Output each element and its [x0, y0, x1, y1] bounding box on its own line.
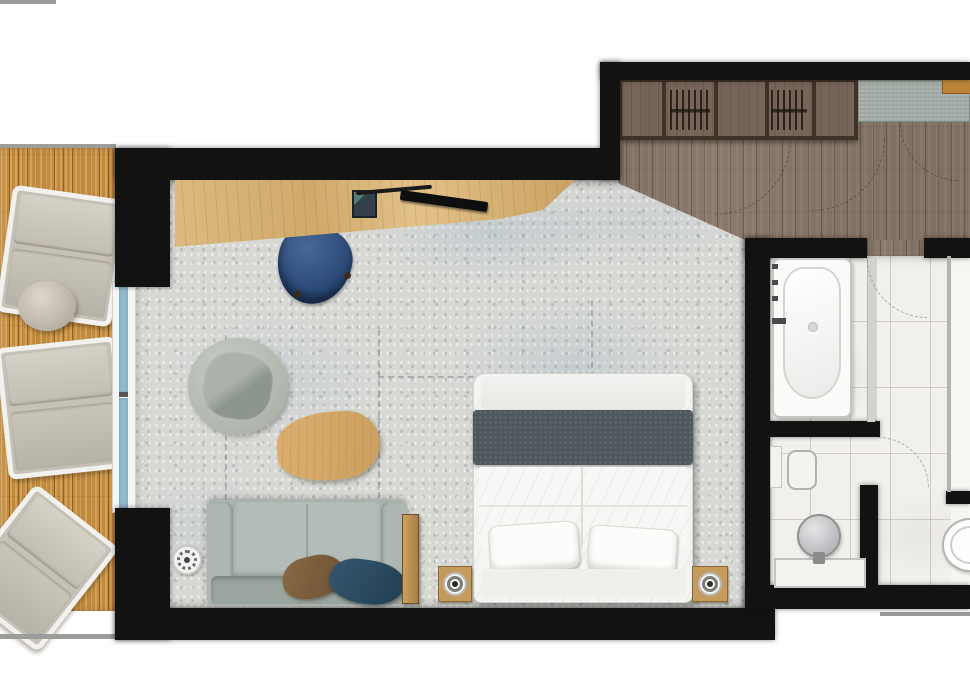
wall-toilet-stub — [946, 491, 970, 504]
wardrobe — [618, 78, 858, 140]
bathtub-faucet-icon — [772, 264, 778, 269]
entrance-door-leaf — [942, 78, 970, 94]
double-bed — [473, 373, 693, 605]
door-swing-arc — [714, 138, 791, 215]
wall-bath-top-right — [924, 238, 970, 258]
wall-entry-top — [600, 62, 970, 80]
bathroom-doorway-threshold — [867, 240, 924, 256]
sink-faucet-icon — [813, 552, 825, 564]
toilet-bowl — [950, 526, 970, 564]
lounger-back-cushion — [13, 194, 119, 257]
exterior-wall-line — [880, 612, 970, 616]
wall-bath-divider-horizontal — [768, 421, 880, 437]
wall-top-main — [115, 148, 620, 180]
wardrobe-divider — [662, 82, 666, 136]
bed-duvet-fold — [479, 505, 687, 507]
wall-bath-bottom — [745, 585, 970, 609]
ceiling-dashed-line — [378, 330, 380, 508]
sun-lounger-2 — [0, 336, 129, 480]
wall-bath-top-left — [745, 238, 867, 258]
bathtub-basin — [783, 267, 841, 399]
desk-chair-caster — [344, 272, 351, 279]
wardrobe-divider — [765, 82, 769, 136]
bed-duvet-seam — [581, 467, 583, 547]
bed-head-edge — [481, 569, 685, 597]
bath-stool — [787, 450, 817, 490]
floor-lamp-bulb — [184, 557, 190, 563]
sofa — [207, 500, 407, 608]
exterior-wall-line — [0, 0, 56, 4]
bed-runner — [473, 410, 693, 465]
wall-left-upper — [115, 148, 170, 287]
balcony-side-table — [18, 281, 76, 331]
wardrobe-divider — [812, 82, 816, 136]
bath-wall-niche — [770, 446, 782, 488]
table-lamp-center — [452, 581, 458, 587]
table-lamp-icon — [698, 572, 722, 596]
desk-chair-caster — [294, 291, 301, 298]
door-swing-arc — [900, 122, 959, 181]
wall-bottom-main — [115, 608, 775, 640]
window-glazing-pane — [119, 286, 128, 392]
lounger-seat-cushion — [10, 402, 120, 471]
bathtub — [772, 258, 852, 418]
wall-east-main — [745, 238, 770, 610]
wall-bath-right-line — [947, 256, 951, 492]
bed-foot-fold — [481, 376, 685, 410]
side-console — [402, 514, 419, 604]
door-swing-arc — [812, 138, 885, 211]
bathtub-faucet-icon — [772, 296, 778, 301]
nightstand-right — [692, 566, 728, 602]
exterior-wall-line — [0, 144, 116, 148]
floor-lamp — [172, 545, 202, 575]
clothes-hangers-icon — [771, 90, 807, 130]
wardrobe-divider — [714, 82, 718, 136]
clothes-hangers-icon — [670, 90, 710, 130]
window-latch — [119, 392, 128, 397]
floor-plan-canvas — [0, 0, 970, 700]
bathtub-faucet-icon — [772, 280, 778, 285]
armchair-cushion — [197, 345, 278, 424]
lounger-back-cushion — [4, 345, 113, 407]
table-lamp-center — [707, 581, 713, 587]
table-lamp-icon — [443, 572, 467, 596]
bathtub-faucet-icon — [772, 318, 786, 324]
swivel-armchair — [188, 338, 288, 434]
nightstand-left — [438, 566, 472, 602]
bathtub-drain — [808, 322, 818, 332]
ceiling-dashed-line — [591, 300, 593, 378]
bed-pillow-left — [487, 520, 580, 574]
window-glazing-pane — [119, 398, 128, 508]
